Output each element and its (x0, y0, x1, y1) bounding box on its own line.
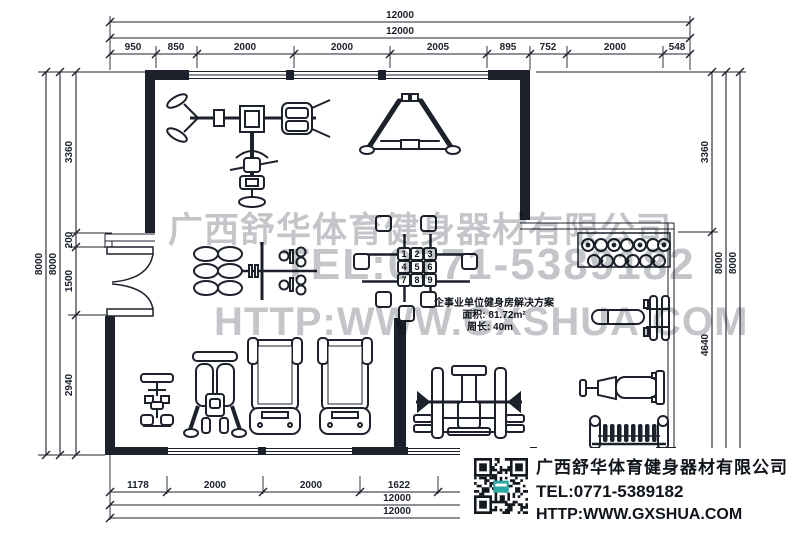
station-number: 9 (427, 275, 432, 285)
stepper-machine-symbol (184, 352, 246, 437)
dim-label: 950 (125, 42, 142, 53)
dim-top-total-1: 12000 (386, 10, 414, 21)
station-number: 8 (414, 275, 419, 285)
dim-label: 548 (669, 42, 686, 53)
dim-label: 2000 (331, 42, 354, 53)
station-number: 7 (401, 275, 406, 285)
bench-press-right-symbol (592, 296, 670, 340)
dim-label: 895 (500, 42, 517, 53)
solution-perimeter: 周长: 40m (467, 320, 513, 333)
trapezoid-rack-symbol (360, 94, 460, 154)
dim-label: 8000 (728, 251, 739, 274)
dim-label: 2000 (204, 480, 227, 491)
dim-label: 1622 (388, 480, 411, 491)
dim-bottom-total-2: 12000 (383, 506, 411, 517)
company-website: HTTP:WWW.GXSHUA.COM (536, 503, 788, 526)
exercise-bike-symbol (141, 374, 173, 426)
station-number: 5 (414, 262, 419, 272)
dim-label: 752 (540, 42, 557, 53)
dim-label: 8000 (714, 251, 725, 274)
solution-title: 企事业单位健身房解决方案 (433, 296, 555, 309)
dim-bottom-total-1: 12000 (383, 493, 411, 504)
dim-label: 2000 (234, 42, 257, 53)
bench-press-center-symbol (414, 366, 524, 438)
company-info-box: 广西舒华体育健身器材有限公司 TEL:0771-5389182 HTTP:WWW… (460, 448, 800, 536)
station-number: 4 (401, 262, 406, 272)
dim-label: 2005 (427, 42, 450, 53)
station-number: 1 (401, 249, 406, 259)
plate-storage-rack-symbol (590, 416, 668, 448)
treadmill-symbol (318, 338, 372, 434)
dim-label: 200 (64, 231, 75, 248)
dim-label: 1178 (127, 480, 149, 491)
dim-label: 850 (168, 42, 185, 53)
dim-label: 2000 (604, 42, 627, 53)
treadmill-symbol (248, 338, 302, 434)
station-number: 2 (414, 249, 419, 259)
ab-bench-symbol (580, 371, 664, 404)
station-number: 6 (427, 262, 432, 272)
dim-label: 2940 (64, 373, 75, 396)
barbell-plate-rack-symbol (193, 242, 317, 300)
dim-label: 4640 (700, 333, 711, 356)
dim-label: 8000 (34, 252, 45, 275)
dim-label: 1500 (64, 269, 75, 292)
station-number: 3 (427, 249, 432, 259)
double-door-symbol (107, 247, 153, 316)
dim-top-total-2: 12000 (386, 26, 414, 37)
dumbbell-rack-symbol (578, 233, 670, 267)
qr-code (474, 458, 528, 514)
floor-plan-page: 12000 12000 950 850 2000 2000 2005 895 7… (0, 0, 800, 536)
company-tel: TEL:0771-5389182 (536, 480, 788, 503)
dim-label: 2000 (300, 480, 323, 491)
dim-label: 3360 (64, 140, 75, 163)
solution-area: 面积: 81.72m² (462, 308, 526, 321)
multi-station-machine-symbol (165, 92, 330, 207)
dim-label: 8000 (48, 252, 59, 275)
dim-label: 3360 (700, 140, 711, 163)
company-name: 广西舒华体育健身器材有限公司 (536, 456, 788, 480)
solution-text-block: 企事业单位健身房解决方案 面积: 81.72m² 周长: 40m (433, 296, 555, 333)
